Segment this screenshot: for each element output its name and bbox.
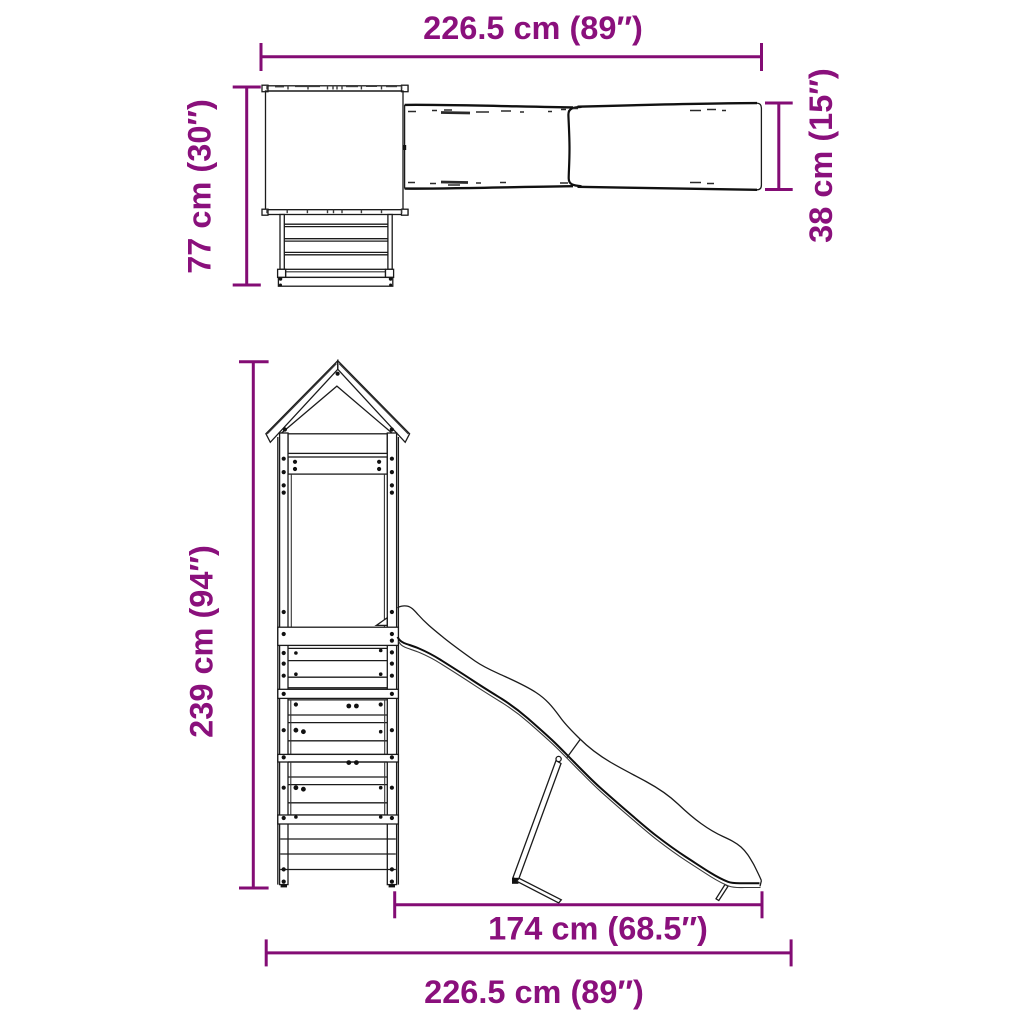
svg-text:226.5 cm (89″): 226.5 cm (89″) [423,10,643,46]
svg-text:77 cm (30″): 77 cm (30″) [182,99,218,274]
svg-text:174 cm (68.5″): 174 cm (68.5″) [488,910,708,946]
svg-text:226.5 cm (89″): 226.5 cm (89″) [424,974,644,1010]
svg-text:239 cm (94″): 239 cm (94″) [183,545,219,738]
svg-text:38 cm (15″): 38 cm (15″) [803,68,839,243]
